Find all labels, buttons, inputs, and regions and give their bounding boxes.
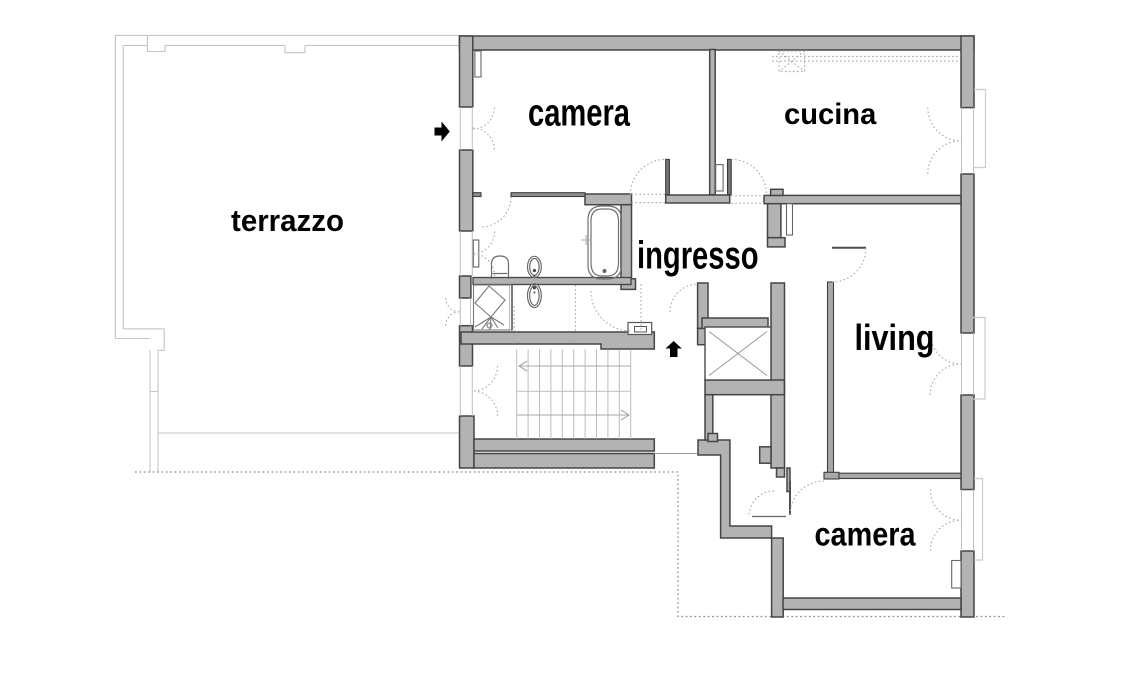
svg-text:camera: camera	[815, 515, 917, 552]
svg-text:living: living	[855, 317, 935, 358]
svg-text:ingresso: ingresso	[637, 235, 759, 278]
svg-text:camera: camera	[528, 93, 631, 135]
svg-text:cucina: cucina	[784, 98, 877, 131]
svg-text:terrazzo: terrazzo	[231, 203, 344, 238]
